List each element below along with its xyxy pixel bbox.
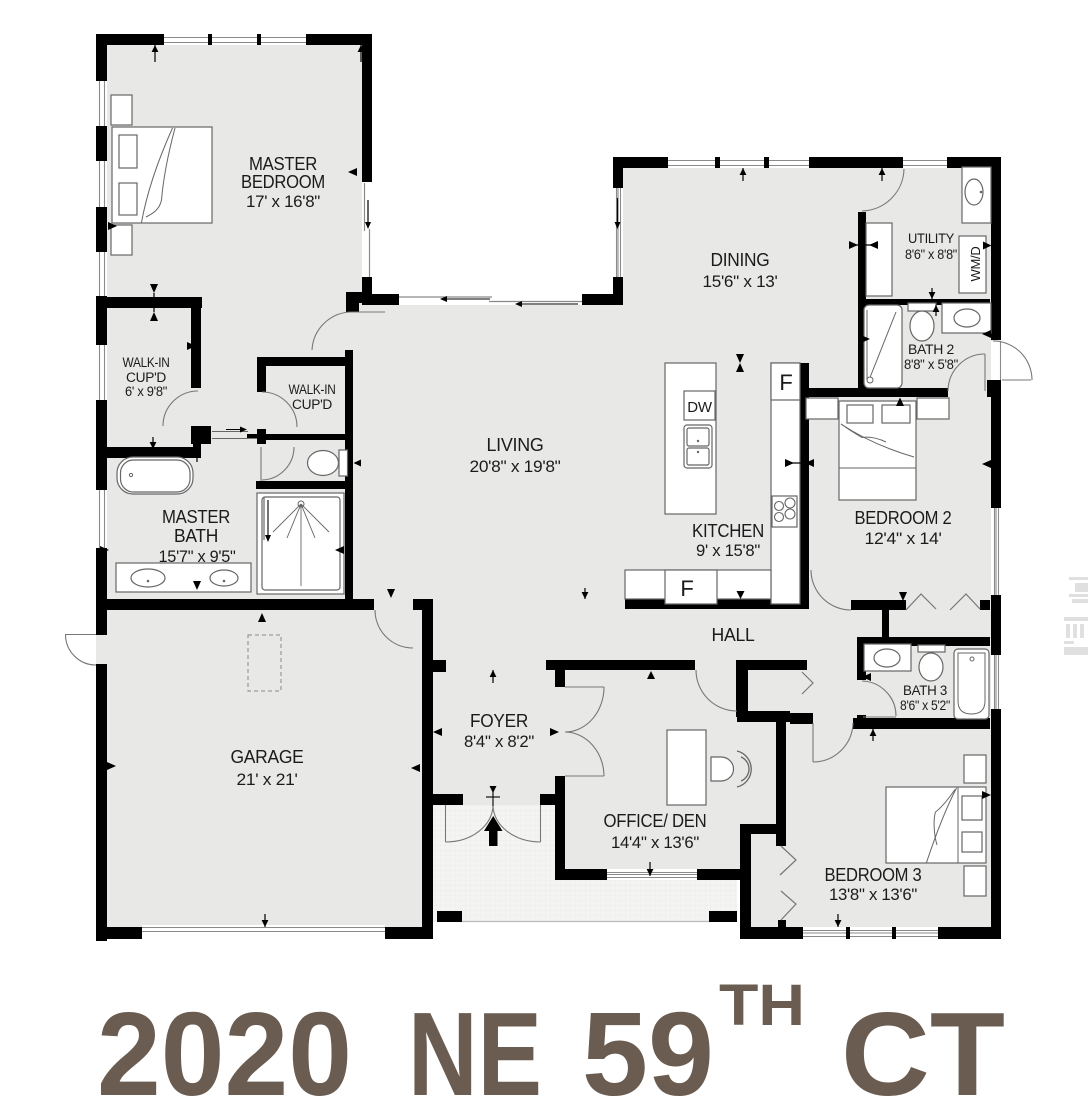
- svg-text:2020: 2020: [97, 988, 352, 1112]
- svg-text:TH: TH: [719, 973, 805, 1038]
- svg-text:8'6" x 5'2": 8'6" x 5'2": [900, 698, 950, 713]
- svg-text:DW: DW: [687, 399, 713, 416]
- svg-text:OFFICE/ DEN: OFFICE/ DEN: [604, 810, 707, 831]
- svg-text:20'8" x 19'8": 20'8" x 19'8": [470, 457, 561, 476]
- svg-text:MASTER: MASTER: [162, 506, 230, 527]
- svg-text:6' x 9'8": 6' x 9'8": [125, 384, 167, 399]
- svg-text:F: F: [680, 576, 693, 601]
- svg-text:CUP'D: CUP'D: [126, 370, 167, 385]
- svg-text:WALK-IN: WALK-IN: [123, 355, 170, 370]
- svg-text:LIVING: LIVING: [487, 434, 544, 455]
- svg-text:59: 59: [582, 988, 714, 1112]
- svg-text:15'6" x 13': 15'6" x 13': [703, 272, 778, 291]
- svg-text:17' x 16'8": 17' x 16'8": [246, 192, 320, 211]
- svg-text:FOYER: FOYER: [470, 710, 528, 731]
- svg-text:BATH 2: BATH 2: [908, 342, 954, 357]
- svg-text:WM/D: WM/D: [968, 247, 983, 282]
- svg-text:CUP'D: CUP'D: [292, 397, 333, 412]
- svg-text:F: F: [779, 370, 792, 395]
- svg-text:GARAGE: GARAGE: [231, 746, 304, 767]
- svg-text:15'7" x 9'5": 15'7" x 9'5": [159, 547, 236, 566]
- svg-text:BATH: BATH: [174, 525, 218, 546]
- svg-text:BEDROOM 3: BEDROOM 3: [825, 864, 922, 885]
- svg-text:BEDROOM 2: BEDROOM 2: [855, 507, 952, 528]
- svg-text:8'4" x 8'2": 8'4" x 8'2": [464, 732, 534, 751]
- svg-text:BATH 3: BATH 3: [903, 683, 947, 698]
- svg-text:CT: CT: [841, 988, 1005, 1112]
- svg-text:WALK-IN: WALK-IN: [289, 382, 336, 397]
- svg-text:12'4" x 14': 12'4" x 14': [865, 529, 942, 548]
- svg-text:UTILITY: UTILITY: [908, 231, 954, 246]
- svg-text:14'4" x 13'6": 14'4" x 13'6": [611, 833, 699, 852]
- svg-text:DINING: DINING: [711, 249, 770, 270]
- svg-text:8'8" x 5'8": 8'8" x 5'8": [904, 357, 958, 372]
- svg-text:9' x 15'8": 9' x 15'8": [696, 541, 760, 560]
- svg-text:KITCHEN: KITCHEN: [692, 520, 764, 541]
- svg-text:13'8" x 13'6": 13'8" x 13'6": [829, 885, 917, 904]
- svg-text:HALL: HALL: [712, 624, 755, 645]
- svg-text:21' x 21': 21' x 21': [237, 770, 298, 789]
- svg-text:BEDROOM: BEDROOM: [241, 171, 325, 192]
- svg-text:NE: NE: [408, 988, 542, 1112]
- svg-text:8'6" x 8'8": 8'6" x 8'8": [905, 247, 957, 262]
